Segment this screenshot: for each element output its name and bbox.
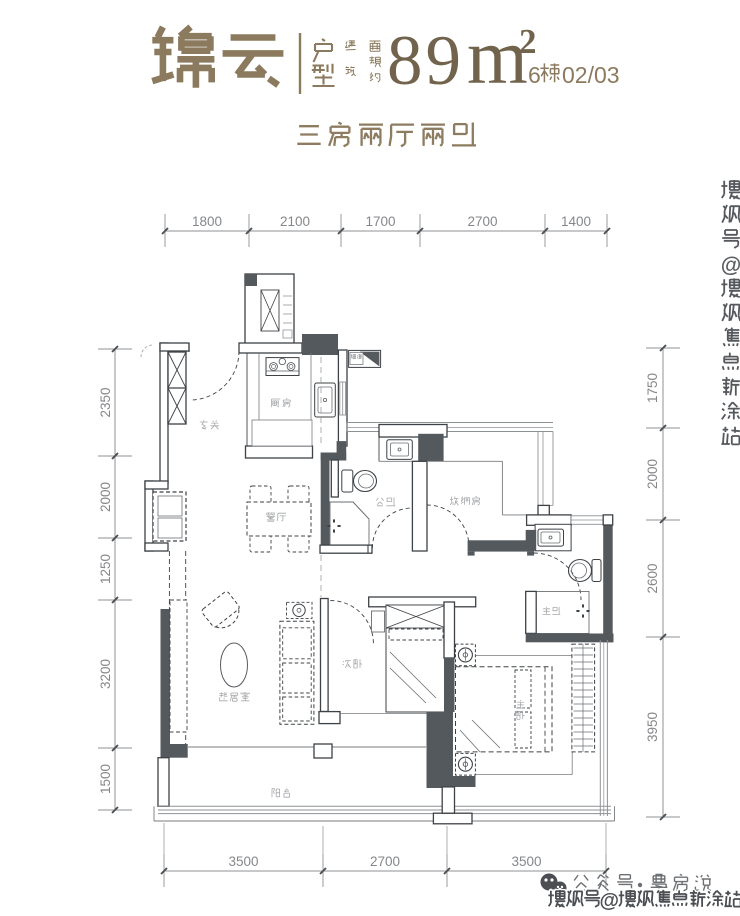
svg-text:2700: 2700 bbox=[370, 854, 400, 869]
svg-text:3950: 3950 bbox=[645, 712, 660, 742]
svg-text:1750: 1750 bbox=[645, 373, 660, 403]
svg-text:1400: 1400 bbox=[561, 214, 591, 229]
svg-text:1500: 1500 bbox=[98, 764, 113, 794]
svg-text:2700: 2700 bbox=[467, 214, 497, 229]
svg-text:1250: 1250 bbox=[98, 554, 113, 584]
svg-text:3200: 3200 bbox=[98, 659, 113, 689]
svg-text:6: 6 bbox=[528, 62, 541, 88]
svg-text:2000: 2000 bbox=[98, 482, 113, 512]
svg-text:2350: 2350 bbox=[98, 387, 113, 417]
svg-text:1700: 1700 bbox=[365, 214, 395, 229]
svg-text:@: @ bbox=[721, 254, 740, 277]
svg-text:89: 89 bbox=[387, 22, 464, 100]
svg-text:3500: 3500 bbox=[511, 854, 541, 869]
svg-text:2: 2 bbox=[519, 22, 537, 61]
svg-text:2100: 2100 bbox=[280, 214, 310, 229]
svg-text:2000: 2000 bbox=[645, 459, 660, 489]
svg-text:3500: 3500 bbox=[228, 854, 258, 869]
svg-text:@: @ bbox=[600, 890, 620, 912]
svg-text:1800: 1800 bbox=[192, 214, 222, 229]
svg-text:2600: 2600 bbox=[645, 563, 660, 593]
svg-text:02/03: 02/03 bbox=[562, 62, 620, 88]
